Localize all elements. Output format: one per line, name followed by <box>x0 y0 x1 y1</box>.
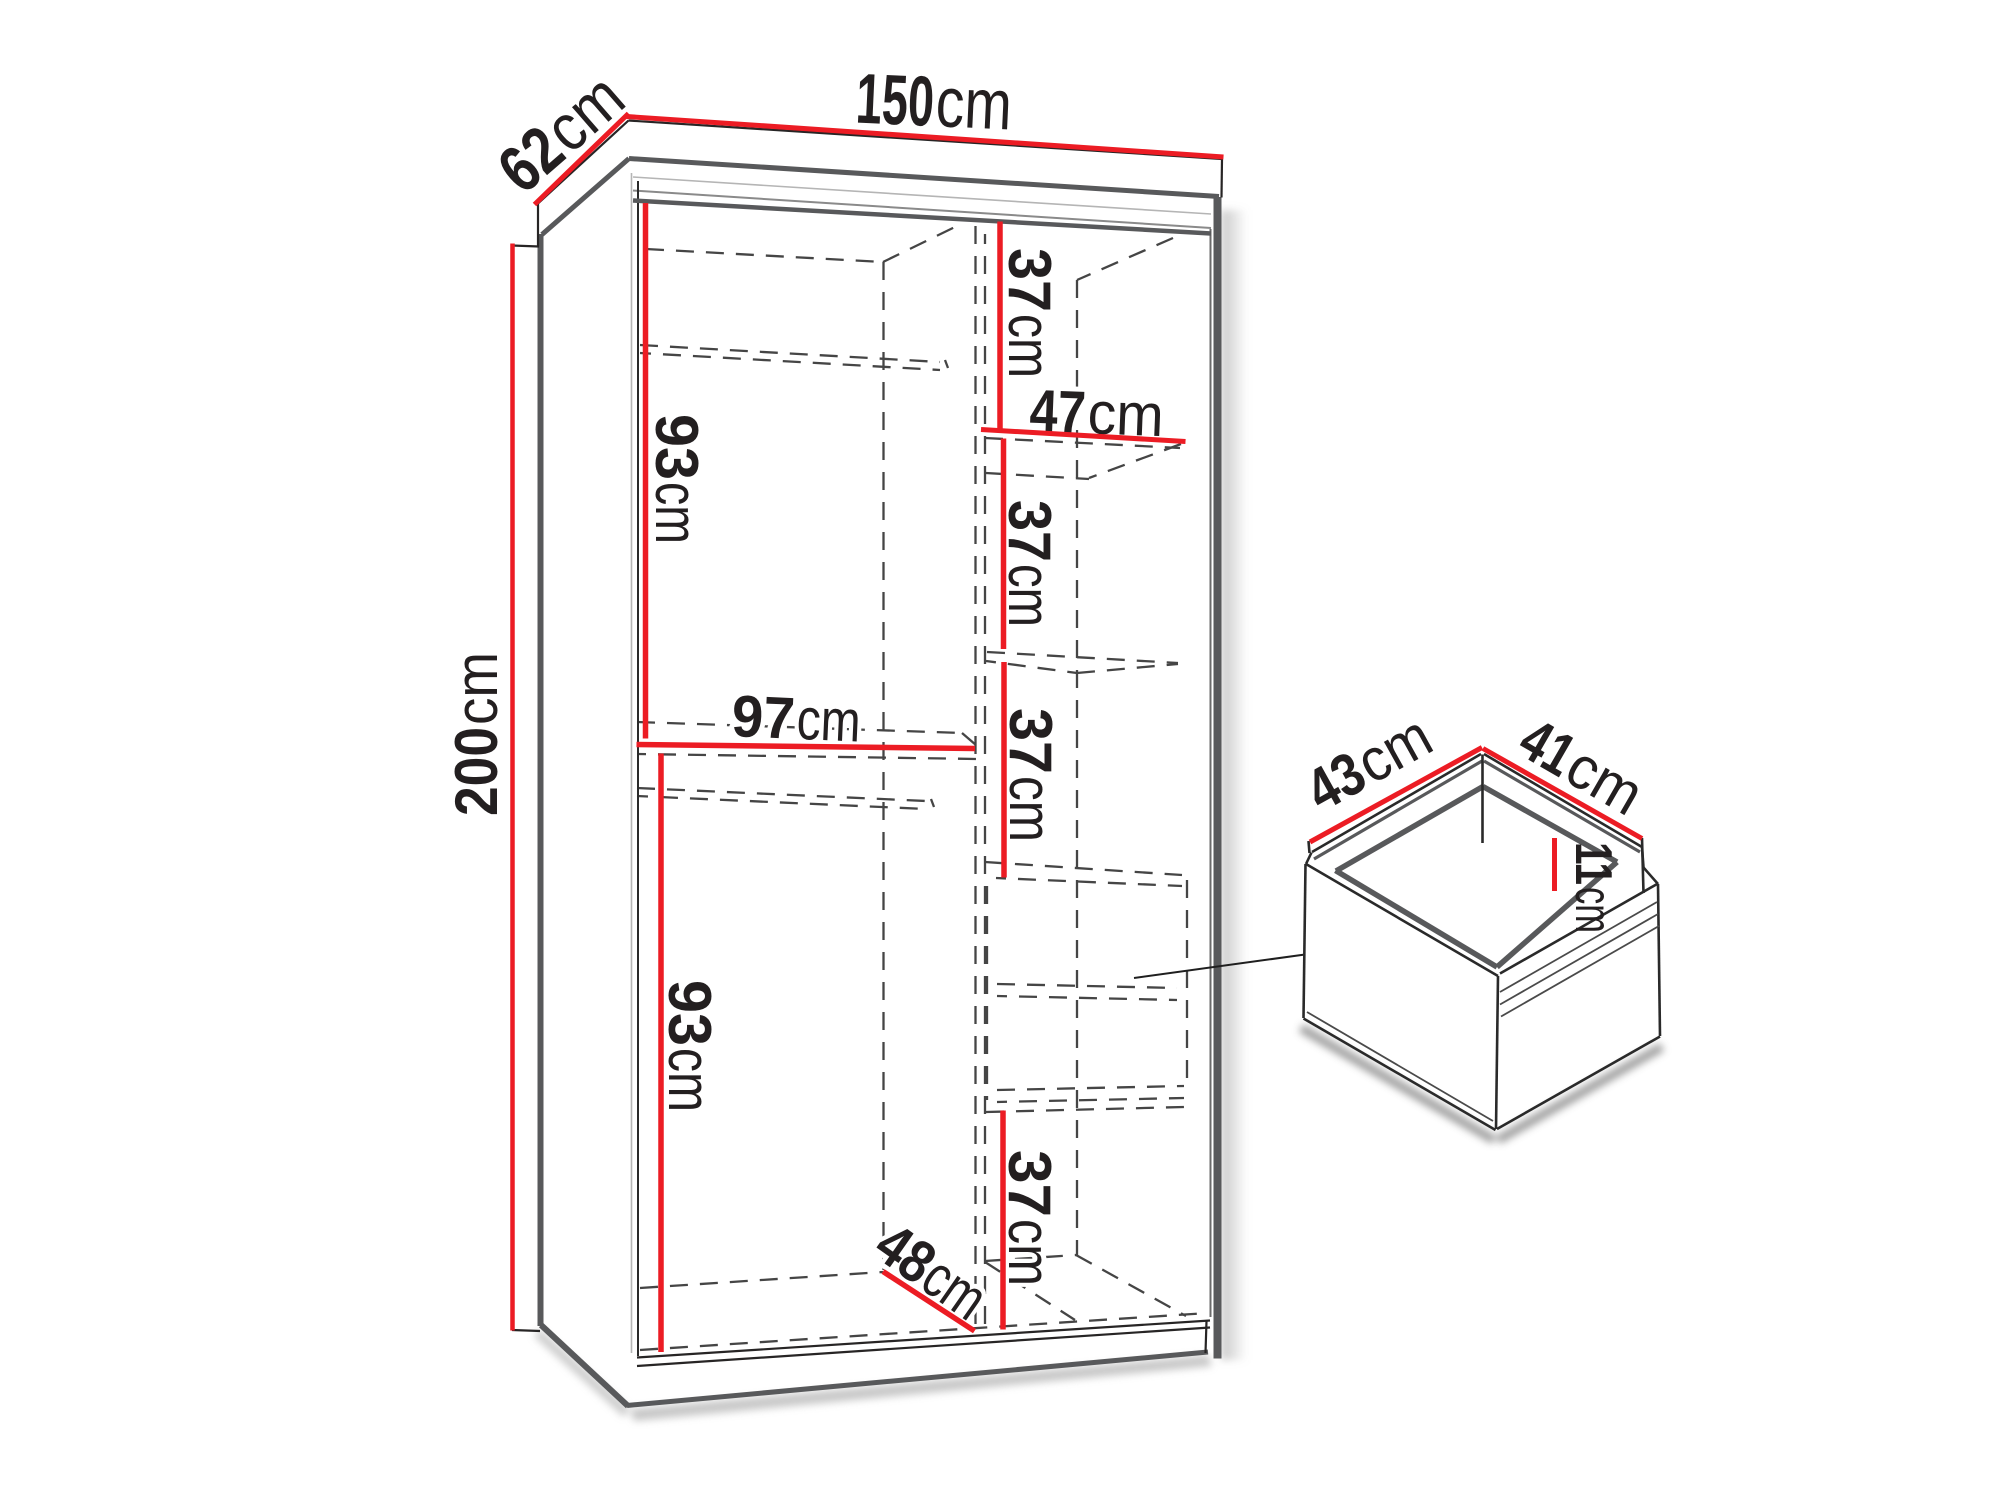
svg-text:43cm: 43cm <box>1295 702 1443 825</box>
svg-text:41cm: 41cm <box>1509 705 1655 828</box>
svg-text:37cm: 37cm <box>997 708 1064 842</box>
svg-text:37cm: 37cm <box>996 1150 1063 1286</box>
svg-text:93cm: 93cm <box>643 414 710 544</box>
svg-text:93cm: 93cm <box>656 980 723 1112</box>
svg-text:11cm: 11cm <box>1564 842 1622 933</box>
svg-text:37cm: 37cm <box>996 248 1063 378</box>
svg-text:200cm: 200cm <box>443 652 510 816</box>
